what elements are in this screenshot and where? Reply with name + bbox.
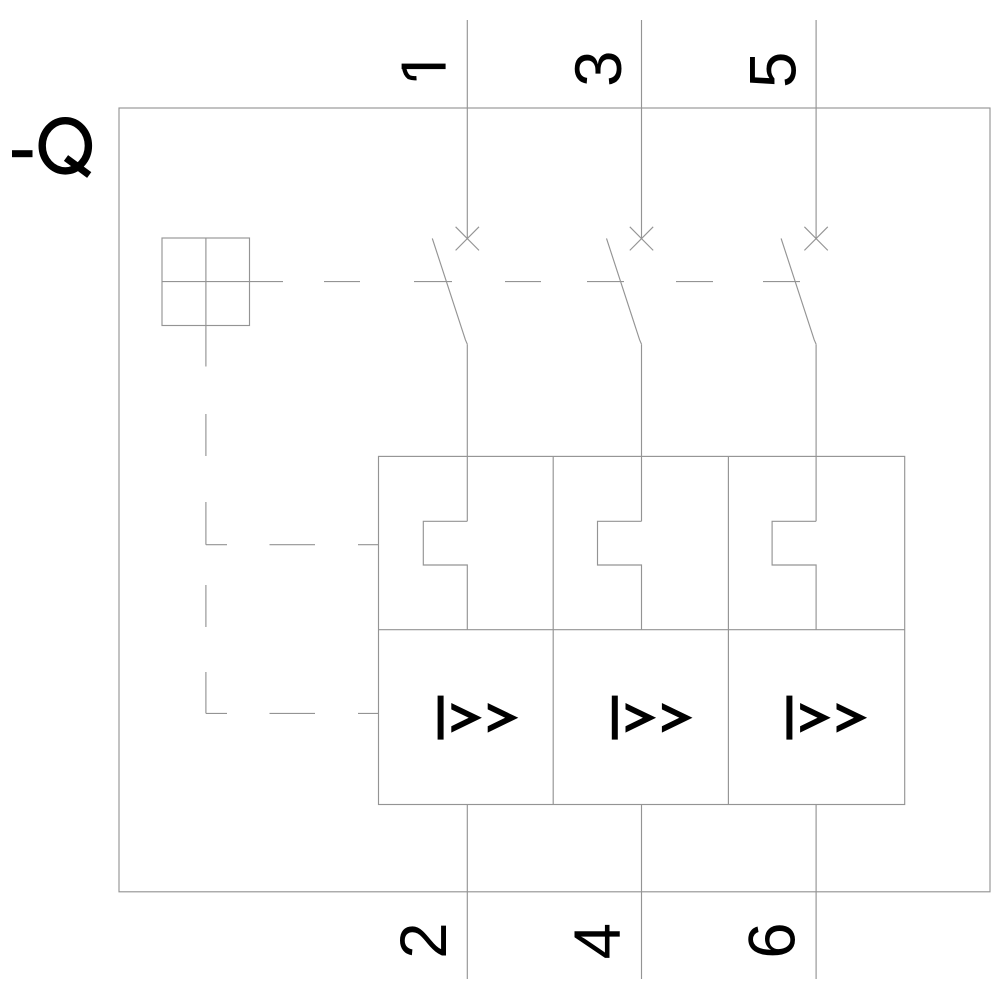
- svg-text:2: 2: [387, 922, 460, 958]
- svg-text:6: 6: [736, 922, 809, 958]
- svg-text:4: 4: [561, 923, 634, 959]
- svg-text:5: 5: [737, 52, 810, 88]
- svg-text:3: 3: [562, 50, 635, 86]
